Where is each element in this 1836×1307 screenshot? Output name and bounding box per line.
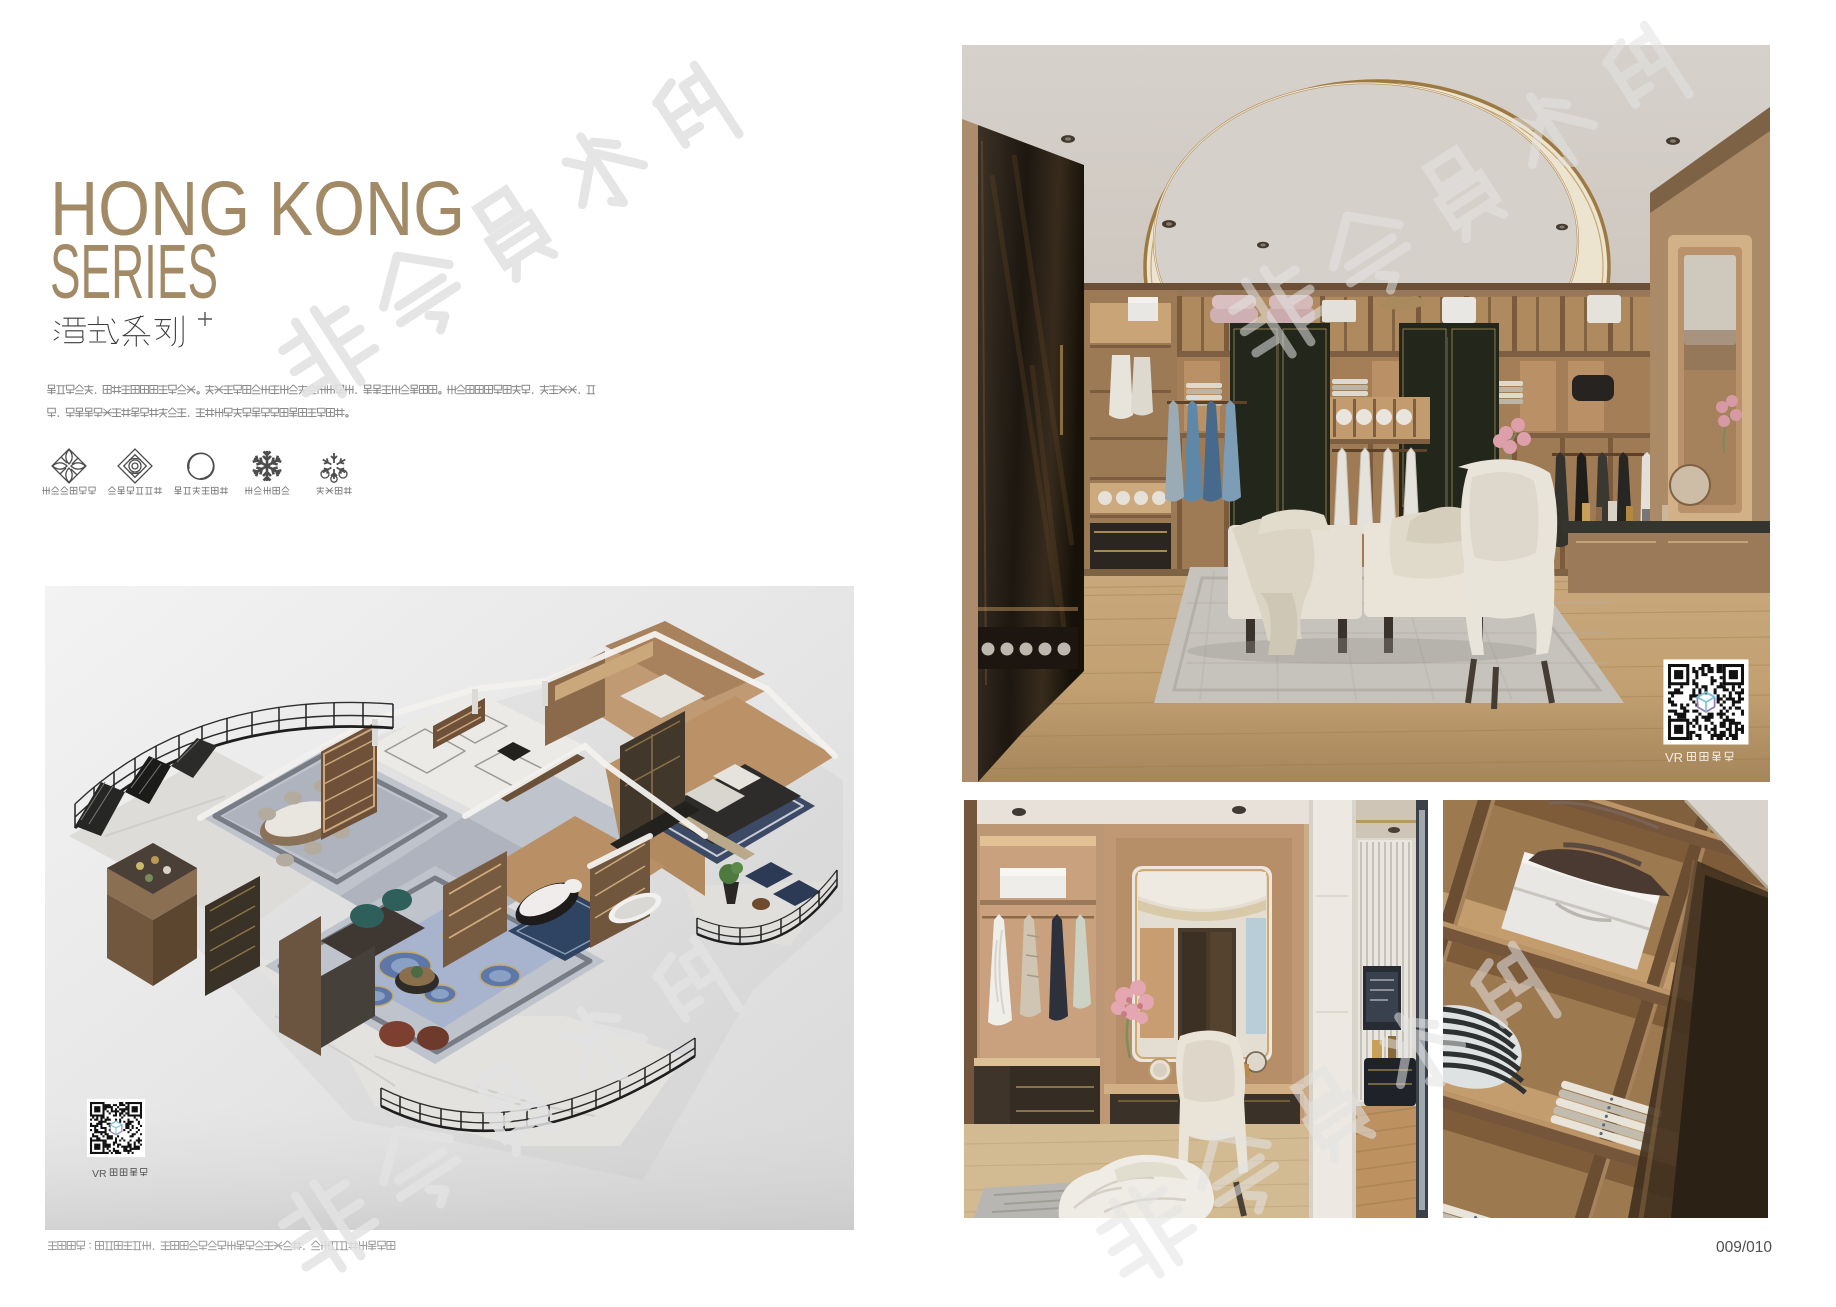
svg-text:009/010: 009/010 (1716, 1239, 1772, 1256)
svg-text:VR: VR (92, 1168, 107, 1180)
svg-text:VR: VR (1665, 750, 1683, 765)
svg-text:SERIES: SERIES (50, 229, 218, 315)
